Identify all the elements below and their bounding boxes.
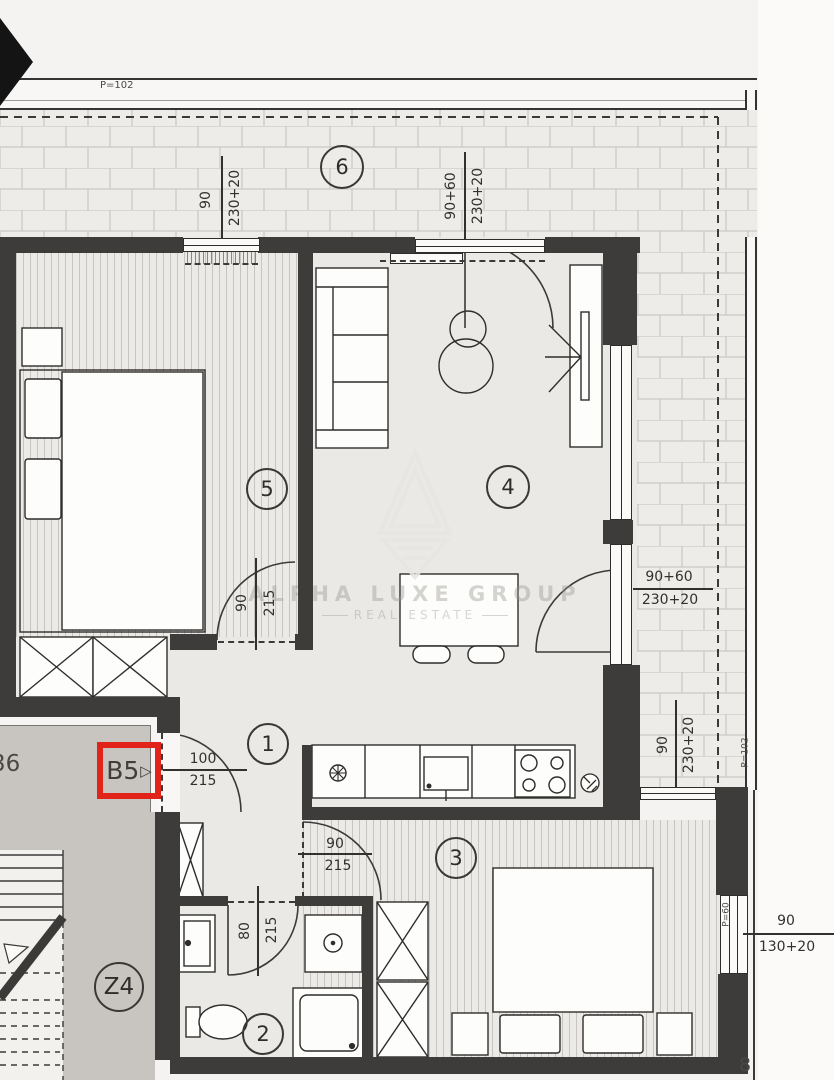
wall: [258, 237, 415, 253]
terrace-top-floor: [0, 110, 757, 237]
room-number-text: 5: [260, 477, 273, 501]
tv-console: [545, 265, 602, 447]
parapet-label: P=102: [742, 723, 751, 783]
dim-text: 90: [656, 715, 670, 775]
room-number-text: 1: [261, 732, 274, 756]
threshold-dashed: [185, 263, 258, 265]
wall: [157, 717, 180, 733]
partial-label-bottom-right: 8: [739, 1056, 751, 1075]
threshold-dashed: [380, 260, 545, 262]
nightstand: [657, 1013, 692, 1055]
room-number-text: 4: [501, 475, 514, 499]
pillow: [500, 1015, 560, 1053]
dim-text: 80: [238, 901, 252, 961]
dim-text: 215: [265, 900, 279, 960]
stairwell-label-text: Z4: [104, 974, 134, 1000]
parapet-label: P=102: [100, 81, 134, 91]
bedroom3-door-leaf-dashed: [302, 822, 304, 898]
parapet-label: P=60: [723, 885, 732, 945]
dim-text: 130+20: [757, 940, 817, 954]
dim-text: 90+60: [639, 570, 699, 584]
room-number-text: 6: [335, 155, 348, 179]
unit-marker-box: B5▷: [97, 742, 161, 799]
nightstand: [452, 1013, 488, 1055]
pillow: [25, 459, 61, 519]
dim-text: 230+20: [640, 593, 700, 607]
dim-line: [633, 588, 713, 590]
wall: [0, 237, 16, 717]
unit-label: B5: [106, 756, 139, 785]
wall: [603, 665, 640, 820]
dim-line: [743, 933, 834, 935]
window: [640, 787, 716, 800]
wall: [170, 634, 217, 650]
washing-machine-icon: [305, 915, 362, 972]
chair: [413, 646, 450, 663]
entry-door-leaf-dashed: [161, 733, 163, 812]
doormat: [390, 253, 463, 264]
toilet-icon: [186, 1005, 247, 1039]
room-number-4: 4: [486, 465, 530, 509]
terrace-right-floor: [637, 237, 745, 790]
room-number-3: 3: [435, 837, 477, 879]
pillow: [583, 1015, 643, 1053]
dim-text: 230+20: [471, 166, 485, 226]
room-number-2: 2: [242, 1013, 284, 1055]
window: [183, 238, 260, 252]
room-number-text: 2: [256, 1022, 269, 1046]
terrace-door-sill: [415, 239, 545, 253]
dim-line: [464, 152, 466, 240]
bedroom5-furniture: [20, 328, 205, 632]
dim-text: 100: [173, 752, 233, 766]
wardrobe-x-icon: [377, 982, 428, 1057]
wardrobe-x-icon: [20, 637, 93, 697]
wall: [298, 237, 313, 648]
shower-icon: [293, 988, 365, 1058]
wall: [603, 520, 633, 544]
wall: [295, 896, 373, 906]
sofa: [316, 268, 388, 448]
dim-text: 215: [263, 573, 277, 633]
bedroom3-furniture: [452, 868, 692, 1055]
tv-icon: [581, 312, 589, 400]
kitchen-counter: [312, 745, 575, 801]
wall: [362, 906, 373, 1057]
pouf-chairs: [439, 311, 493, 393]
dim-text: 90: [199, 170, 213, 230]
watermark-subtext: REAL ESTATE: [315, 608, 515, 622]
dim-line: [257, 886, 259, 976]
washbasin-icon: [178, 915, 215, 972]
nightstand: [22, 328, 62, 366]
dim-text: 215: [308, 859, 368, 873]
bed-duvet: [493, 868, 653, 1012]
wall: [0, 237, 183, 253]
dim-text: 90: [235, 573, 249, 633]
room-number-text: 3: [449, 846, 462, 870]
partial-label-left: 36: [0, 753, 20, 776]
staircase: [0, 850, 63, 1080]
wall: [603, 237, 637, 345]
sliding-door: [610, 544, 632, 665]
bed-duvet: [62, 372, 203, 630]
watermark-logo-icon: [335, 448, 495, 598]
dim-line: [255, 558, 257, 650]
window: [610, 345, 632, 520]
dim-line: [675, 700, 677, 788]
room-number-6: 6: [320, 145, 364, 189]
floor-plan: ALPHA LUXE GROUP REAL ESTATE: [0, 0, 834, 1080]
pillow: [25, 379, 61, 438]
dim-text: 215: [173, 774, 233, 788]
room-number-5: 5: [246, 468, 288, 510]
dim-text: 230+20: [682, 715, 696, 775]
wardrobe-x-icon: [178, 823, 203, 897]
dim-line: [221, 156, 223, 238]
wall: [180, 896, 228, 906]
dim-line: [298, 853, 372, 855]
chair: [468, 646, 504, 663]
wall: [155, 812, 180, 1060]
wall: [0, 697, 180, 717]
wall: [170, 1057, 748, 1074]
boiler-icon: [581, 774, 599, 792]
dim-text: 90+60: [444, 166, 458, 226]
stairwell-label: Z4: [94, 962, 144, 1012]
wall: [295, 634, 313, 650]
stove-icon: [515, 750, 570, 797]
bedroom5-opening-dashed: [218, 641, 295, 643]
wall: [718, 974, 748, 1060]
wall: [302, 745, 312, 807]
wall: [716, 787, 748, 895]
unit-arrow-icon: ▷: [140, 762, 152, 780]
wardrobe-x-icon: [377, 902, 428, 980]
north-arrow-icon: [0, 18, 33, 106]
wall: [302, 807, 607, 820]
wardrobe-x-icon: [93, 637, 167, 697]
room-number-1: 1: [247, 723, 289, 765]
dim-text: 90: [756, 914, 816, 928]
dim-line: [163, 769, 247, 771]
fan-icon: [330, 765, 346, 781]
dim-text: 230+20: [228, 168, 242, 228]
dim-text: 90: [305, 837, 365, 851]
